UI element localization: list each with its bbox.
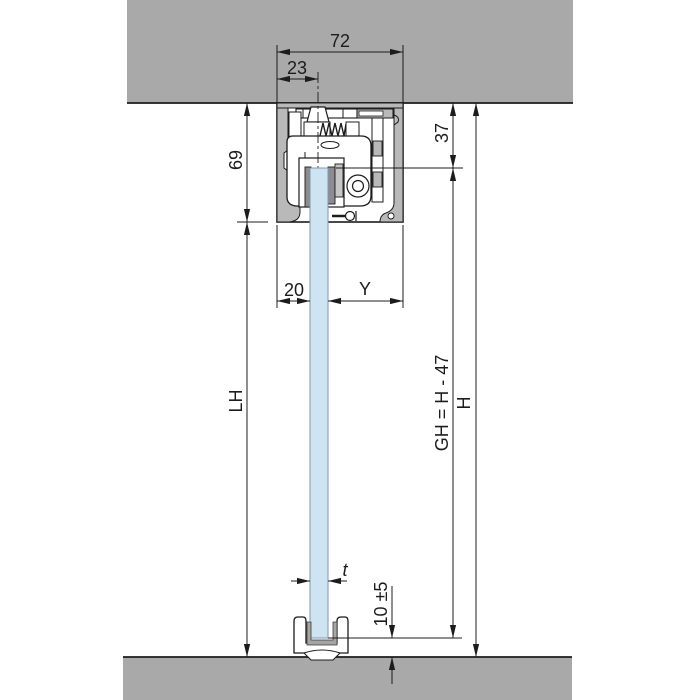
dim-label-23: 23 [287, 58, 307, 78]
dim-label-lh: LH [226, 389, 246, 412]
dim-glass-inset: 20 Y [277, 225, 403, 308]
dim-label-10pm5: 10 ±5 [371, 582, 391, 627]
dim-label-69: 69 [226, 150, 246, 170]
technical-drawing-canvas: 72 23 69 LH 37 GH = H - 47 H 20 Y [0, 0, 700, 700]
dim-label-72: 72 [330, 31, 350, 51]
dim-label-y: Y [359, 279, 371, 299]
dim-label-gh: GH = H - 47 [432, 355, 452, 452]
dim-label-20: 20 [284, 280, 304, 300]
dim-total-height: H [454, 103, 476, 657]
section-drawing: 72 23 69 LH 37 GH = H - 47 H 20 Y [0, 0, 700, 700]
guide-foot [304, 650, 340, 660]
glass-panel [310, 168, 328, 638]
dim-label-h: H [454, 397, 474, 410]
floor-slab [123, 657, 572, 700]
dim-glass-height: GH = H - 47 [328, 168, 462, 638]
dim-clear-height: LH [226, 222, 247, 657]
dim-label-37: 37 [432, 123, 452, 143]
dim-track-height: 69 [226, 103, 268, 222]
dim-label-t: t [342, 560, 348, 580]
